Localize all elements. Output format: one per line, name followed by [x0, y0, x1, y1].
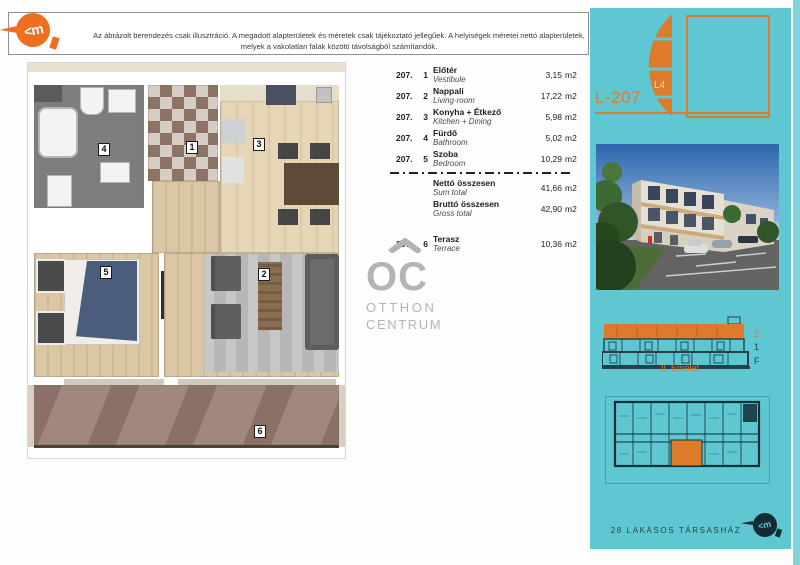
stack-label: L4 — [654, 80, 666, 91]
armchair — [211, 304, 241, 339]
room-name-hu: Nappali — [433, 86, 525, 96]
total-unit: m2 — [565, 183, 583, 193]
room-number-6: 6 — [254, 425, 266, 438]
kitchen-mat-2 — [222, 157, 244, 183]
terrace-column — [339, 385, 345, 447]
room-unit: m2 — [565, 239, 583, 249]
table-row: 207.5 SzobaBedroom 10,29 m2 — [396, 148, 582, 169]
room-number-1: 1 — [186, 141, 198, 154]
row-code: 207. — [396, 133, 413, 143]
oc-logo-icon: <m — [16, 13, 50, 47]
dining-chair — [310, 143, 330, 159]
brand-line-1: OTTHON — [366, 300, 456, 315]
room-area: 5,98 — [528, 112, 562, 122]
bathroom-shelf — [34, 85, 62, 102]
room-name-en: Bedroom — [433, 159, 525, 168]
washing-machine — [47, 175, 72, 207]
header-disclaimer-box: Az ábrázolt berendezés csak illusztráció… — [8, 12, 589, 55]
sidebar-divider — [595, 112, 768, 114]
vanity — [100, 162, 130, 183]
sofa — [305, 254, 339, 350]
room-number-5: 5 — [100, 266, 112, 279]
brand-line-2: CENTRUM — [366, 317, 456, 332]
nightstand — [36, 259, 66, 293]
total-name-en: Sum total — [433, 188, 525, 197]
floorplan-image: 4 1 3 5 2 6 — [28, 63, 345, 458]
page: Az ábrázolt berendezés csak illusztráció… — [0, 0, 800, 565]
page-edge-strip — [793, 0, 800, 565]
room-name-hu: Szoba — [433, 149, 525, 159]
bathtub — [38, 107, 78, 158]
floor-label-1: 1 — [754, 342, 759, 352]
total-name-hu: Bruttó összesen — [433, 199, 525, 209]
room-name-hu: Konyha + Étkező — [433, 107, 525, 117]
brand-initials: OC — [366, 258, 456, 296]
otthon-centrum-logo: OC OTTHON CENTRUM — [366, 238, 456, 332]
room-unit: m2 — [565, 112, 583, 122]
room-table: 207.1 ElőtérVestibule 3,15 m2 207.2 Napp… — [396, 64, 582, 254]
row-no: 4 — [423, 133, 428, 143]
floor-caption: II. Emelet — [590, 363, 770, 373]
table-divider — [390, 172, 574, 174]
hallway — [152, 181, 220, 253]
room-unit: m2 — [565, 154, 583, 164]
plan-frame — [686, 15, 770, 118]
kitchen-mat — [222, 119, 246, 143]
kitchen-sink — [316, 87, 332, 103]
nightstand — [36, 311, 66, 345]
room-name-en: Vestibule — [433, 75, 525, 84]
row-no: 5 — [423, 154, 428, 164]
row-no: 2 — [423, 91, 428, 101]
table-row: 207.4 FürdőBathroom 5,02 m2 — [396, 127, 582, 148]
footer-logo-dash — [741, 521, 753, 525]
total-row: Nettó összesenSum total 41,66 m2 — [396, 177, 582, 198]
dining-chair — [310, 209, 330, 225]
total-area: 41,66 — [528, 183, 562, 193]
total-name-hu: Nettó összesen — [433, 178, 525, 188]
dining-chair — [278, 143, 298, 159]
room-name-en: Living-room — [433, 96, 525, 105]
cooktop — [266, 85, 296, 105]
room-number-4: 4 — [98, 143, 110, 156]
disclaimer-line-2: melyek a vakolatlan falak közötti távols… — [89, 41, 589, 52]
row-no: 1 — [423, 70, 428, 80]
room-unit: m2 — [565, 133, 583, 143]
building-caption: 28 LAKÁSOS TÁRSASHÁZ — [590, 526, 762, 535]
row-code: 207. — [396, 112, 413, 122]
footer-logo-chip — [775, 528, 782, 537]
room-area: 10,36 — [528, 239, 562, 249]
table-row: 207.2 NappaliLiving-room 17,22 m2 — [396, 85, 582, 106]
sidebar-panel: L4 L-207 — [590, 8, 791, 549]
total-unit: m2 — [565, 204, 583, 214]
disclaimer-text: Az ábrázolt berendezés csak illusztráció… — [89, 30, 589, 52]
room-unit: m2 — [565, 70, 583, 80]
unit-code: L-207 — [595, 88, 641, 108]
floor-label-2: 2 — [754, 329, 759, 339]
room-area: 3,15 — [528, 70, 562, 80]
row-code: 207. — [396, 154, 413, 164]
dining-chair — [278, 209, 298, 225]
total-name-en: Gross total — [433, 209, 525, 218]
total-row: Bruttó összesenGross total 42,90 m2 — [396, 198, 582, 219]
room-name-en: Bathroom — [433, 138, 525, 147]
row-code: 207. — [396, 91, 413, 101]
sink — [108, 89, 136, 113]
footer-logo-glyph: <m — [757, 519, 772, 532]
terrace-column — [28, 385, 34, 447]
footer-logo-icon: <m — [753, 513, 777, 537]
room-name-hu: Fürdő — [433, 128, 525, 138]
room-name-hu: Előtér — [433, 65, 525, 75]
room-unit: m2 — [565, 91, 583, 101]
armchair — [211, 256, 241, 291]
table-row: 207.1 ElőtérVestibule 3,15 m2 — [396, 64, 582, 85]
toilet — [80, 87, 104, 115]
floorplan-top-wall — [28, 63, 345, 72]
roof-icon — [388, 238, 422, 253]
room-number-3: 3 — [253, 138, 265, 151]
building-render-image — [596, 144, 779, 290]
table-row: 207.3 Konyha + ÉtkezőKitchen + Dining 5,… — [396, 106, 582, 127]
key-plan-diagram — [605, 396, 770, 484]
building-stack-icon: L4 — [646, 13, 674, 117]
room-area: 5,02 — [528, 133, 562, 143]
dining-table — [284, 163, 339, 205]
room-vestibule — [148, 85, 218, 181]
total-area: 42,90 — [528, 204, 562, 214]
room-number-2: 2 — [258, 268, 270, 281]
room-name-en: Kitchen + Dining — [433, 117, 525, 126]
row-no: 3 — [423, 112, 428, 122]
room-area: 17,22 — [528, 91, 562, 101]
room-area: 10,29 — [528, 154, 562, 164]
row-code: 207. — [396, 70, 413, 80]
oc-logo-glyph: <m — [22, 20, 44, 40]
disclaimer-line-1: Az ábrázolt berendezés csak illusztráció… — [89, 30, 589, 41]
room-terrace — [34, 385, 339, 448]
highlighted-unit — [671, 440, 702, 466]
